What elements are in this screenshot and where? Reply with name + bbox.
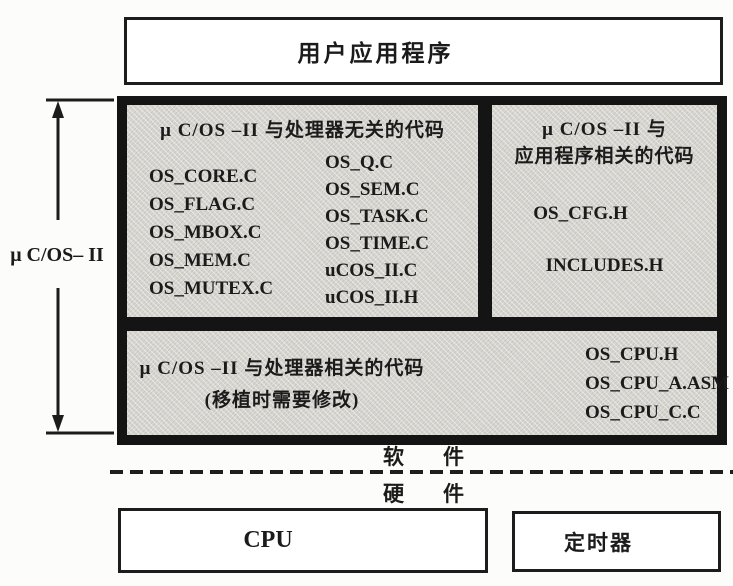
software-char: 件 [443,441,464,471]
software-label: 软 件 [383,441,464,471]
processor-related-panel: μ C/OS –II 与处理器相关的代码 (移植时需要修改) OS_CPU.H … [127,331,717,435]
file-item: OS_Q.C [325,149,429,176]
file-item: OS_CFG.H [468,203,693,225]
processor-related-title-line2: (移植时需要修改) [127,385,437,412]
ucos-ii-side-label: μ C/OS– II [0,244,114,267]
processor-related-title: μ C/OS –II 与处理器相关的代码 (移植时需要修改) [127,353,437,412]
independent-file-list-col1: OS_CORE.C OS_FLAG.C OS_MBOX.C OS_MEM.C O… [149,163,273,303]
independent-file-list-col2: OS_Q.C OS_SEM.C OS_TASK.C OS_TIME.C uCOS… [325,149,429,311]
application-related-panel: μ C/OS –II 与 应用程序相关的代码 OS_CFG.H INCLUDES… [492,105,717,317]
file-item: OS_MUTEX.C [149,275,273,303]
hardware-label: 硬 件 [383,478,464,508]
file-item: uCOS_II.C [325,257,429,284]
hardware-char: 件 [443,478,464,508]
processor-independent-panel: μ C/OS –II 与处理器无关的代码 OS_CORE.C OS_FLAG.C… [127,105,478,317]
arrowhead-up [52,101,64,118]
software-hardware-divider [110,470,733,474]
application-related-title-line2: 应用程序相关的代码 [492,141,717,168]
file-item: OS_CORE.C [149,163,273,191]
application-related-title-line1: μ C/OS –II 与 [492,114,717,141]
file-item: OS_CPU_C.C [585,398,729,427]
file-item: OS_SEM.C [325,176,429,203]
arrowhead-down [52,415,64,432]
timer-label: 定时器 [564,527,633,557]
processor-independent-title: μ C/OS –II 与处理器无关的代码 [127,115,478,142]
hardware-char: 硬 [383,478,404,508]
cpu-label: CPU [243,527,292,554]
file-item: OS_FLAG.C [149,191,273,219]
ucos-ii-main-block: μ C/OS –II 与处理器无关的代码 OS_CORE.C OS_FLAG.C… [117,96,727,445]
file-item: OS_TIME.C [325,230,429,257]
processor-related-title-line1: μ C/OS –II 与处理器相关的代码 [127,353,437,380]
processor-related-file-list: OS_CPU.H OS_CPU_A.ASM OS_CPU_C.C [585,340,729,427]
file-item: OS_MEM.C [149,247,273,275]
file-item: INCLUDES.H [492,255,717,277]
software-char: 软 [383,441,404,471]
file-item: OS_CPU_A.ASM [585,369,729,398]
file-item: uCOS_II.H [325,284,429,311]
timer-box: 定时器 [512,511,721,572]
file-item: OS_TASK.C [325,203,429,230]
file-item: OS_MBOX.C [149,219,273,247]
cpu-box: CPU [118,508,488,573]
user-application-box: 用户应用程序 [124,17,723,85]
user-application-label: 用户应用程序 [298,34,454,68]
file-item: OS_CPU.H [585,340,729,369]
